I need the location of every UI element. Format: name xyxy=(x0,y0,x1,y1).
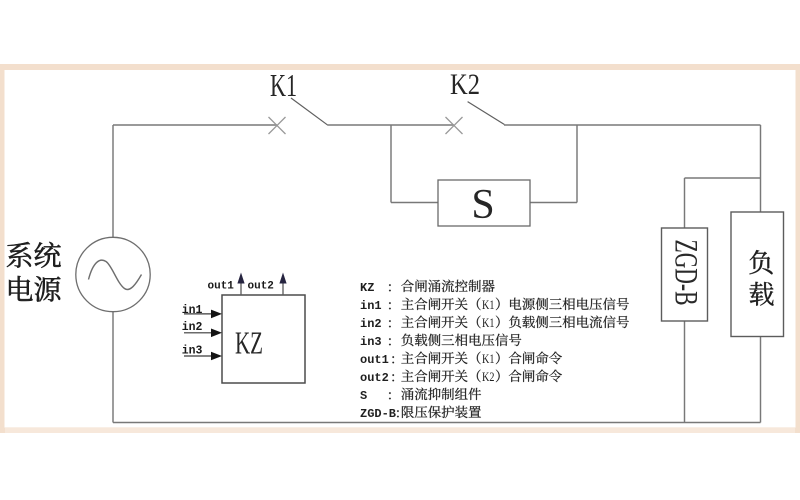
svg-text:out2: out2 xyxy=(248,281,274,293)
svg-text:K2: K2 xyxy=(450,68,480,101)
svg-text:in2: in2 xyxy=(182,321,203,334)
svg-text:K1: K1 xyxy=(482,351,494,366)
svg-text:S: S xyxy=(471,182,494,228)
svg-text:ZGD-B: ZGD-B xyxy=(667,240,704,306)
svg-text:K1: K1 xyxy=(270,67,297,103)
svg-text:in3: in3 xyxy=(182,344,203,357)
svg-text:in2: in2 xyxy=(360,317,382,331)
svg-text:K1: K1 xyxy=(482,297,494,312)
svg-text:S: S xyxy=(360,389,367,403)
svg-text:out2: out2 xyxy=(360,371,389,385)
svg-text:ZGD-B: ZGD-B xyxy=(360,407,396,421)
svg-text:in1: in1 xyxy=(182,304,203,317)
svg-text:K2: K2 xyxy=(482,369,494,384)
svg-text:out1: out1 xyxy=(208,281,235,293)
svg-text:KZ: KZ xyxy=(360,281,374,295)
svg-text:in3: in3 xyxy=(360,335,382,349)
svg-text:K1: K1 xyxy=(482,315,494,330)
svg-text:KZ: KZ xyxy=(235,324,263,360)
svg-text:out1: out1 xyxy=(360,353,389,367)
svg-text:in1: in1 xyxy=(360,299,382,313)
